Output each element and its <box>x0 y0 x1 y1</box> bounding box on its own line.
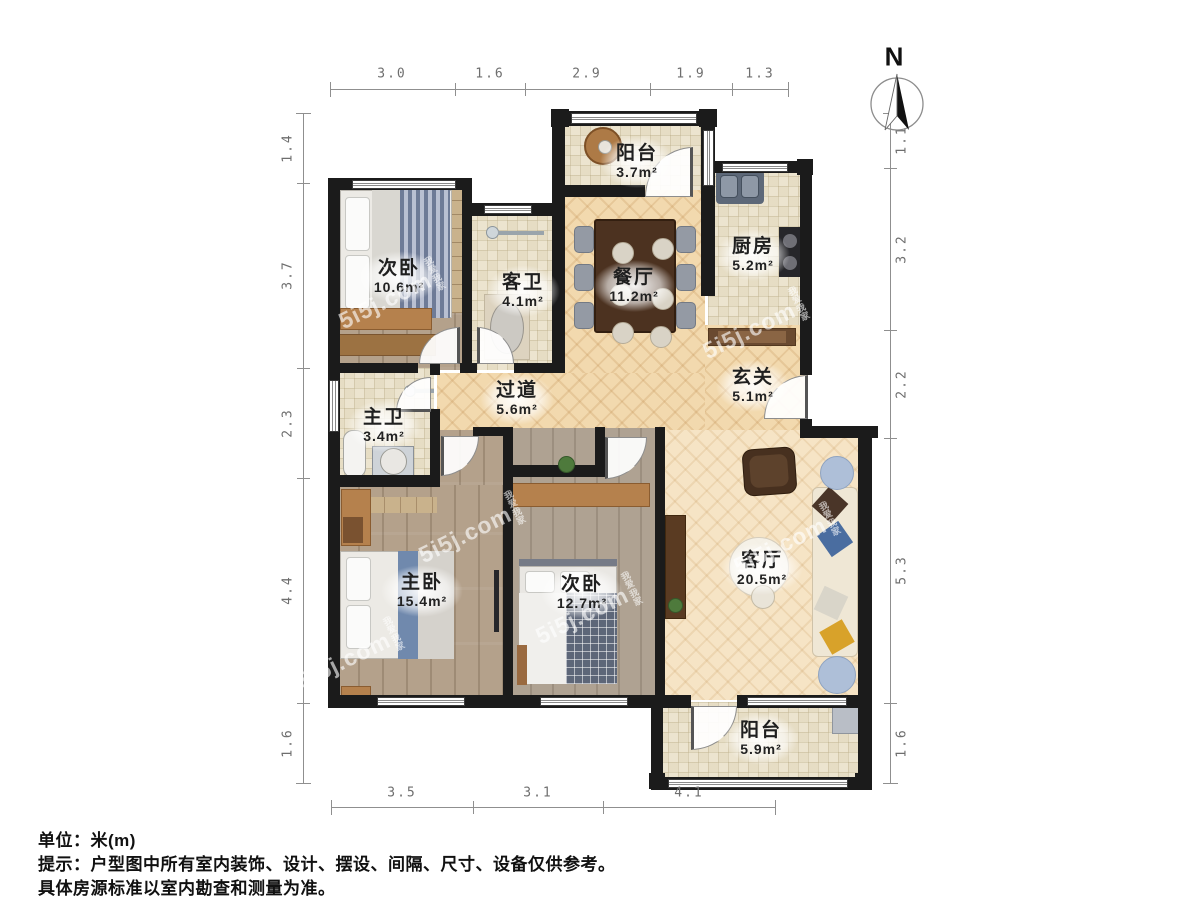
room-area: 5.9m² <box>740 741 782 757</box>
dim-tick <box>732 83 733 96</box>
dim-value: 1.6 <box>281 728 296 757</box>
room-label-balcony-top: 阳台 3.7m² <box>600 136 674 188</box>
room-label-master-bath: 主卫 3.4m² <box>347 400 421 452</box>
dim-value: 5.3 <box>895 555 910 584</box>
wall-tv <box>494 570 499 632</box>
dim-tick <box>884 330 897 331</box>
room-label-balcony-bottom: 阳台 5.9m² <box>724 713 798 765</box>
sink-bowl <box>720 175 738 198</box>
room-name: 阳台 <box>740 721 782 741</box>
chair <box>574 302 594 329</box>
sink-bowl <box>741 175 759 198</box>
dim-tick <box>884 438 897 439</box>
window <box>377 697 465 706</box>
dim-tick <box>650 83 651 96</box>
wall <box>462 178 472 373</box>
dim-value: 3.5 <box>387 786 416 801</box>
wall <box>552 111 565 373</box>
rug-round <box>818 656 856 694</box>
wall <box>595 427 605 477</box>
north-compass-icon <box>867 70 929 140</box>
dim-value: 3.1 <box>523 786 552 801</box>
north-label: N <box>885 42 904 73</box>
dim-value: 1.6 <box>895 728 910 757</box>
wall-corner <box>797 159 813 175</box>
plant-icon <box>558 456 575 473</box>
window <box>329 380 339 432</box>
dim-tick <box>296 113 311 114</box>
plate <box>652 238 674 260</box>
window <box>352 180 456 189</box>
room-name: 厨房 <box>732 237 774 257</box>
floorplan-canvas: 阳台 3.7m² 次卧 10.6m² 客卫 4.1m² 餐厅 11.2m² 厨房… <box>0 0 1200 900</box>
balcony-cabinet <box>832 706 860 734</box>
wall-corner <box>855 773 872 790</box>
room-label-master-bedroom: 主卧 15.4m² <box>381 565 463 617</box>
dim-value: 2.2 <box>895 369 910 398</box>
room-label-dining: 餐厅 11.2m² <box>593 260 675 312</box>
room-name: 主卫 <box>363 408 405 428</box>
dim-tick <box>296 783 311 784</box>
wall-corner <box>649 773 665 789</box>
pillow <box>345 197 370 251</box>
window <box>703 130 714 186</box>
dim-tick <box>603 801 604 814</box>
wall <box>514 363 562 373</box>
dim-tick <box>884 168 897 169</box>
wall <box>328 178 340 708</box>
window <box>722 163 788 172</box>
window <box>540 697 628 706</box>
dim-tick <box>884 703 897 704</box>
dim-line-right <box>890 113 891 783</box>
room-name: 过道 <box>496 381 538 401</box>
room-name: 阳台 <box>616 144 658 164</box>
wall-corner <box>551 109 569 127</box>
room-area: 4.1m² <box>502 293 544 309</box>
dim-tick <box>330 82 331 97</box>
rug <box>517 645 527 685</box>
dim-tick <box>331 800 332 815</box>
dim-value: 2.3 <box>281 408 296 437</box>
dim-value: 3.7 <box>281 260 296 289</box>
room-area: 5.6m² <box>496 401 538 417</box>
wall <box>430 363 440 375</box>
room-name: 餐厅 <box>609 268 659 288</box>
plate <box>650 326 672 348</box>
dim-tick <box>525 83 526 96</box>
wall <box>460 363 477 373</box>
room-name: 主卧 <box>397 573 447 593</box>
dim-value: 4.4 <box>281 575 296 604</box>
plant-icon <box>668 598 683 613</box>
wall <box>328 363 418 373</box>
dim-line-top <box>330 89 788 90</box>
wall <box>328 475 440 487</box>
dim-value: 4.1 <box>674 786 703 801</box>
wall <box>800 161 812 375</box>
rug-round <box>820 456 854 490</box>
room-area: 3.4m² <box>363 428 405 444</box>
footer-tip2: 具体房源标准以室内勘查和测量为准。 <box>38 874 336 899</box>
room-name: 玄关 <box>732 368 774 388</box>
shower-drain <box>380 448 407 475</box>
window <box>484 205 532 214</box>
room-area: 3.7m² <box>616 164 658 180</box>
dim-tick <box>775 800 776 815</box>
wall <box>503 465 605 477</box>
footer-unit: 单位：米(m) <box>38 826 136 851</box>
room-label-guest-bath: 客卫 4.1m² <box>486 265 560 317</box>
floor-hallway <box>437 373 705 430</box>
chair <box>676 226 696 253</box>
dim-value: 1.9 <box>676 67 705 82</box>
room-area: 11.2m² <box>609 288 659 304</box>
dim-value: 1.3 <box>745 67 774 82</box>
footer-tip1: 提示：户型图中所有室内装饰、设计、摆设、间隔、尺寸、设备仅供参考。 <box>38 850 616 875</box>
towel-bar <box>498 231 544 235</box>
dim-tick <box>455 83 456 96</box>
window <box>571 113 697 124</box>
rug-inner <box>343 517 363 543</box>
wall <box>858 426 872 708</box>
chair <box>676 302 696 329</box>
dim-tick <box>297 478 310 479</box>
window <box>747 697 847 706</box>
wall-corner <box>699 109 717 127</box>
chair <box>574 226 594 253</box>
dim-tick <box>297 183 310 184</box>
dim-tick <box>297 703 310 704</box>
dim-tick <box>297 368 310 369</box>
plate <box>612 322 634 344</box>
dim-value: 2.9 <box>572 67 601 82</box>
dim-value: 3.0 <box>377 67 406 82</box>
room-label-kitchen: 厨房 5.2m² <box>716 229 790 281</box>
room-area: 5.1m² <box>732 388 774 404</box>
dim-value: 1.6 <box>475 67 504 82</box>
room-name: 客卫 <box>502 273 544 293</box>
room-area: 15.4m² <box>397 593 447 609</box>
dim-tick <box>788 82 789 97</box>
dim-line-bottom <box>331 807 775 808</box>
armchair-cushion <box>749 454 789 489</box>
dim-tick <box>883 783 898 784</box>
pillow <box>346 557 371 601</box>
dim-tick <box>473 801 474 814</box>
dim-value: 1.4 <box>281 133 296 162</box>
chair <box>574 264 594 291</box>
room-area: 5.2m² <box>732 257 774 273</box>
sideboard <box>510 483 650 507</box>
dim-value: 3.2 <box>895 234 910 263</box>
chair <box>676 264 696 291</box>
wall <box>655 427 665 708</box>
room-label-hallway: 过道 5.6m² <box>480 373 554 425</box>
